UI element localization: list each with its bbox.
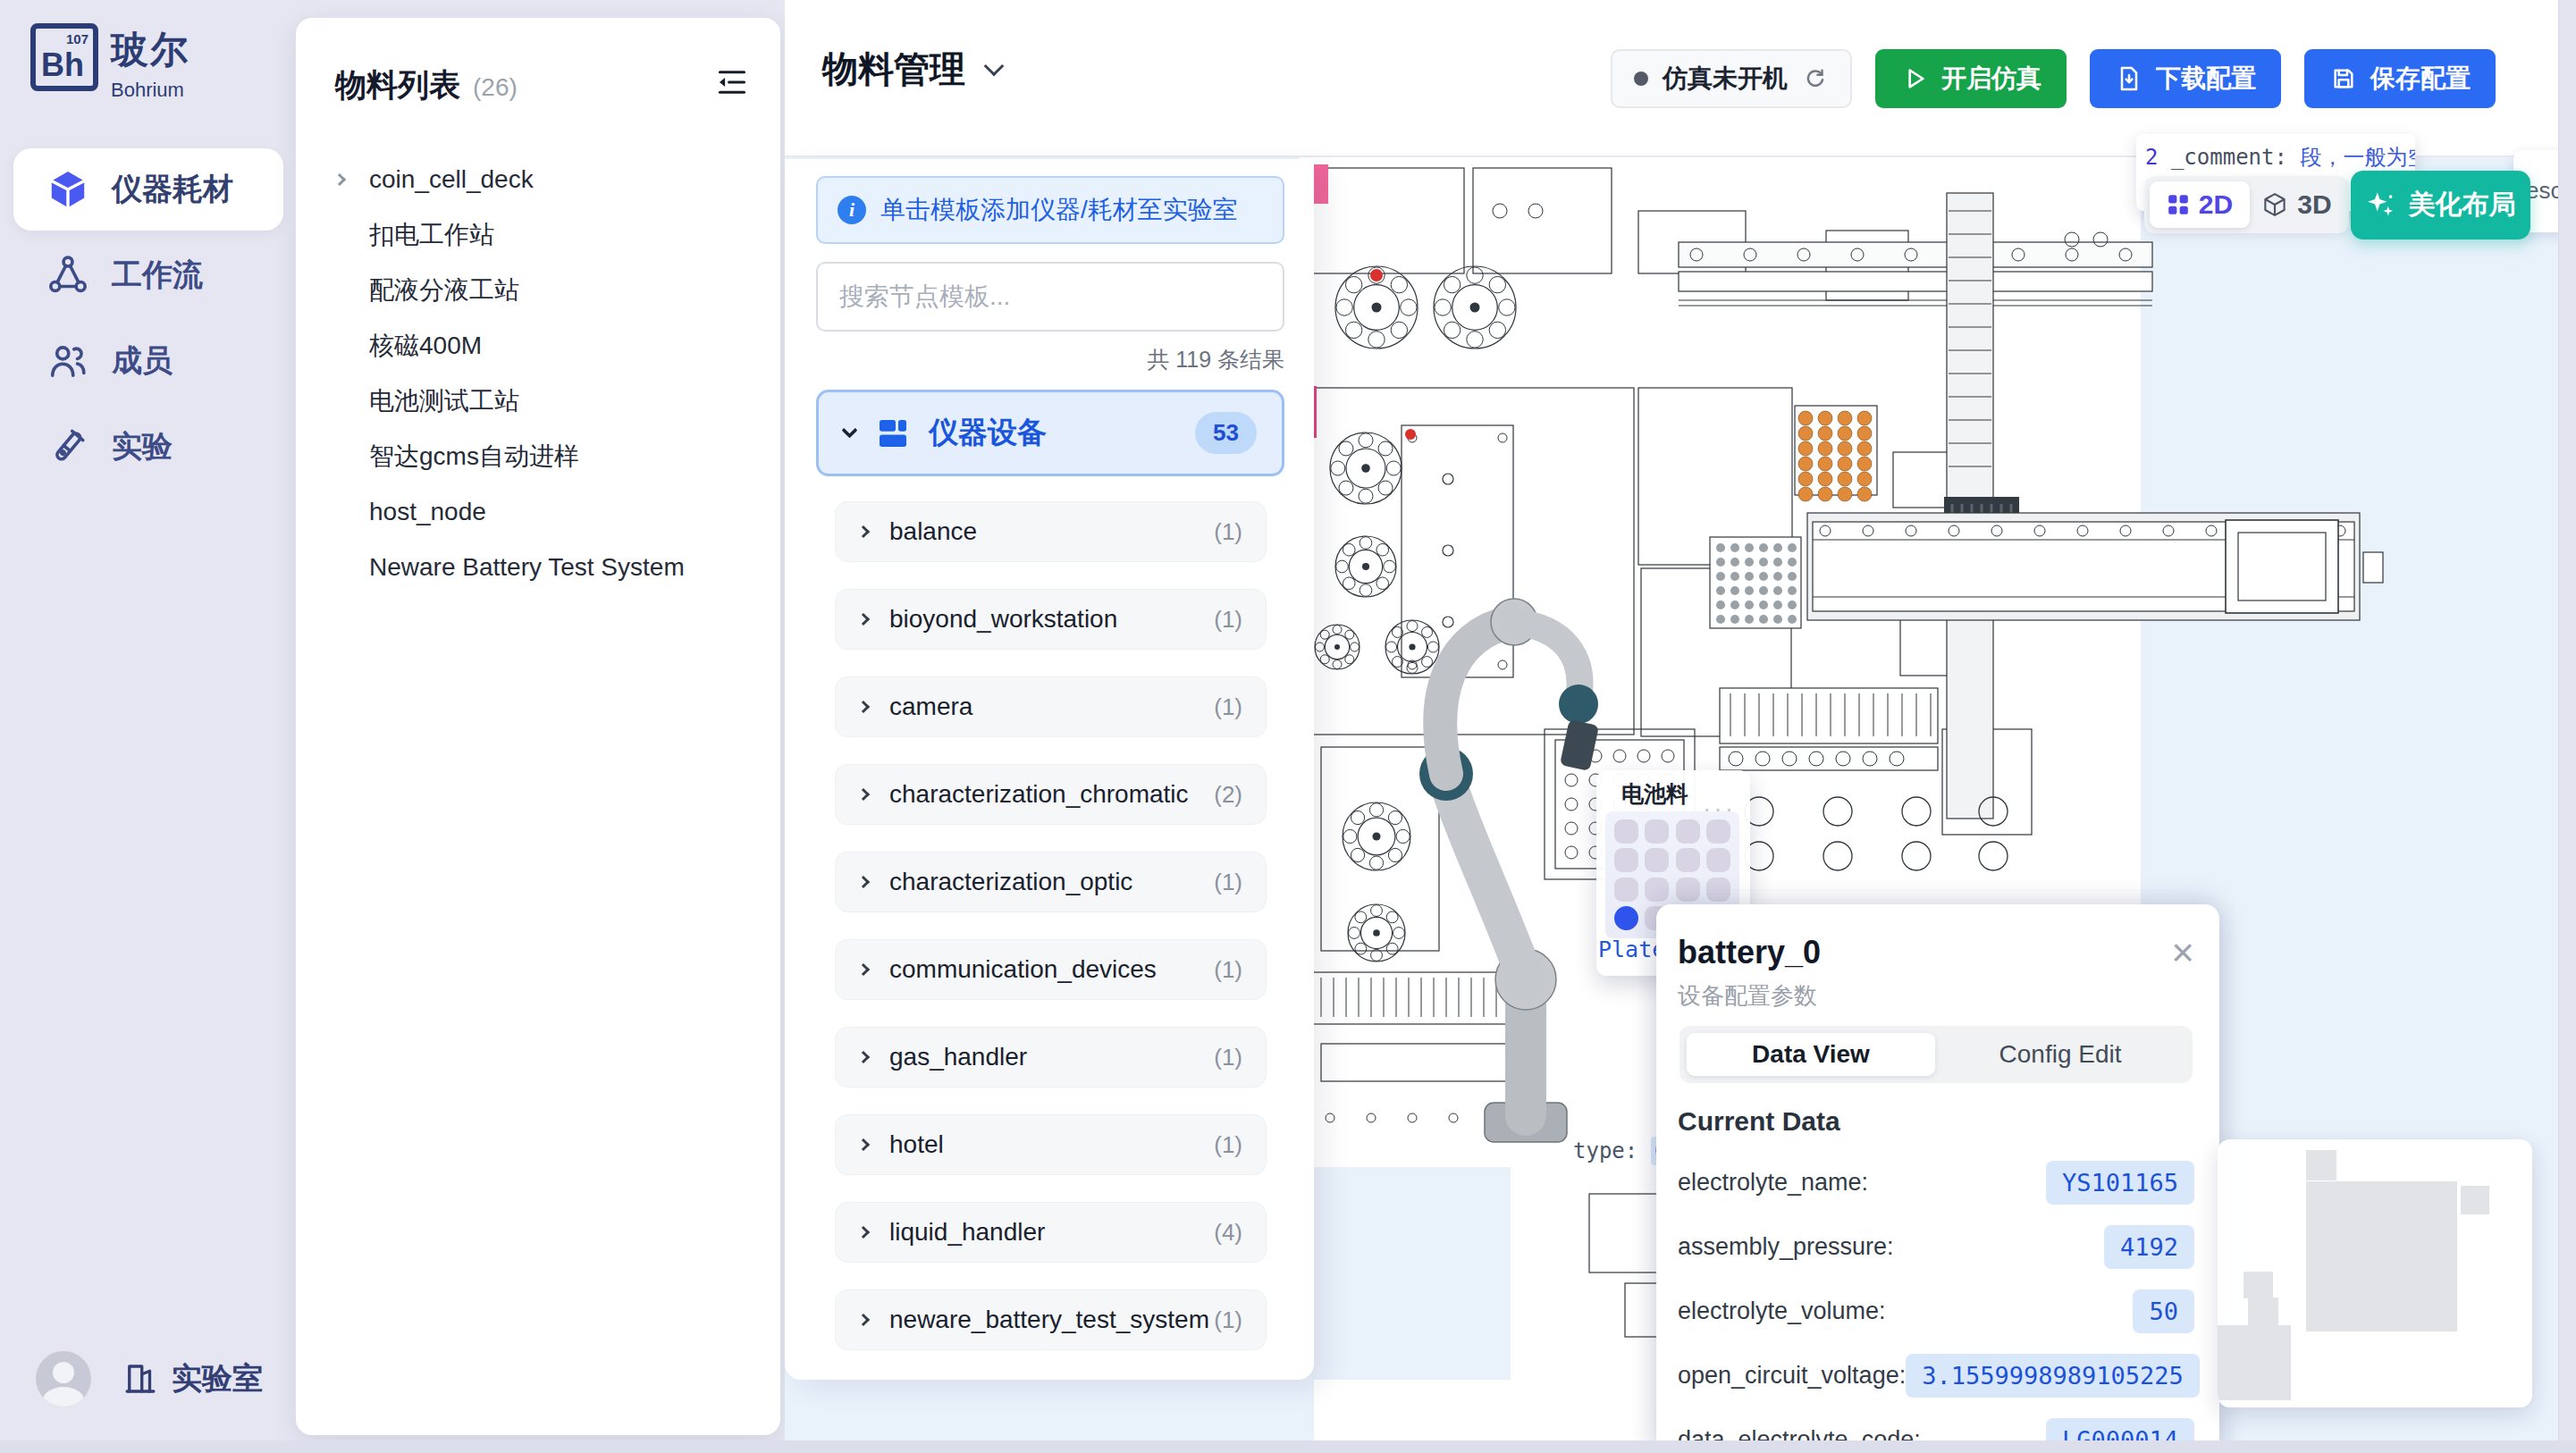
template-item-count: (1) bbox=[1214, 693, 1242, 721]
template-item-count: (2) bbox=[1214, 781, 1242, 809]
search-input[interactable] bbox=[816, 262, 1284, 332]
material-item[interactable]: 电池测试工站 bbox=[335, 374, 753, 429]
chevron-right-icon bbox=[857, 613, 870, 626]
tray-slot bbox=[1645, 819, 1669, 844]
chevron-right-icon bbox=[857, 1314, 870, 1326]
save-config-label: 保存配置 bbox=[2370, 62, 2471, 96]
chevron-down-icon bbox=[841, 422, 857, 438]
brand-name-zh: 玻尔 bbox=[111, 25, 189, 75]
data-row-label: electrolyte_name: bbox=[1678, 1169, 1868, 1197]
template-item-balance[interactable]: balance(1) bbox=[835, 501, 1267, 562]
tray-slot bbox=[1706, 848, 1730, 872]
brand-logo-mark: 107 Bh bbox=[30, 23, 98, 91]
detail-tabs: Data View Config Edit bbox=[1679, 1026, 2193, 1083]
data-row-label: open_circuit_voltage: bbox=[1678, 1362, 1906, 1390]
sidebar-item-label: 成员 bbox=[112, 340, 173, 382]
chevron-right-icon bbox=[857, 525, 870, 538]
simulation-status-pill[interactable]: 仿真未开机 bbox=[1611, 49, 1852, 108]
material-item[interactable]: host_node bbox=[335, 484, 753, 540]
simulation-status-text: 仿真未开机 bbox=[1663, 62, 1788, 96]
download-icon bbox=[2115, 64, 2143, 93]
template-item-characterization_chromatic[interactable]: characterization_chromatic(2) bbox=[835, 764, 1267, 825]
tray-slot bbox=[1676, 878, 1700, 902]
chevron-right-icon bbox=[857, 876, 870, 888]
template-item-gas_handler[interactable]: gas_handler(1) bbox=[835, 1027, 1267, 1088]
tab-config-edit[interactable]: Config Edit bbox=[1935, 1033, 2185, 1076]
template-item-label: characterization_optic bbox=[889, 868, 1132, 896]
template-panel: i 单击模板添加仪器/耗材至实验室 共 119 条结果 仪器设备 53 bala… bbox=[785, 159, 1314, 1380]
grid-layout-icon bbox=[877, 417, 909, 449]
close-icon[interactable]: × bbox=[2171, 936, 2194, 969]
toggle-2d-label: 2D bbox=[2199, 189, 2233, 220]
material-item-label: 扣电工作站 bbox=[369, 218, 494, 252]
sidebar-item-experiments[interactable]: 实验 bbox=[13, 406, 283, 488]
toggle-3d-label: 3D bbox=[2297, 189, 2331, 220]
toggle-2d[interactable]: 2D bbox=[2150, 181, 2250, 228]
brand-logo: 107 Bh 玻尔 Bohrium bbox=[30, 23, 189, 102]
data-row: open_circuit_voltage:3.1559998989105225 bbox=[1678, 1343, 2194, 1407]
template-item-label: liquid_handler bbox=[889, 1218, 1045, 1247]
group-header-instruments[interactable]: 仪器设备 53 bbox=[816, 390, 1284, 476]
sidebar-footer-label: 实验室 bbox=[172, 1358, 263, 1399]
minimap-block bbox=[2461, 1186, 2489, 1214]
material-items: coin_cell_deck扣电工作站配液分液工站核磁400M电池测试工站智达g… bbox=[335, 152, 753, 595]
template-item-count: (1) bbox=[1214, 518, 1242, 546]
vertical-scrollbar[interactable] bbox=[2558, 0, 2576, 1453]
beautify-layout-label: 美化布局 bbox=[2409, 187, 2516, 223]
status-dot-icon bbox=[1634, 71, 1648, 86]
material-list-title: 物料列表 bbox=[335, 64, 460, 106]
template-item-hotel[interactable]: hotel(1) bbox=[835, 1114, 1267, 1175]
tray-slot bbox=[1706, 878, 1730, 902]
material-item[interactable]: 配液分液工站 bbox=[335, 263, 753, 318]
toggle-3d[interactable]: 3D bbox=[2250, 189, 2344, 220]
save-icon bbox=[2329, 64, 2358, 93]
hint-banner-text: 单击模板添加仪器/耗材至实验室 bbox=[880, 193, 1238, 227]
result-count: 共 119 条结果 bbox=[1147, 345, 1284, 374]
material-item-label: 配液分液工站 bbox=[369, 273, 519, 307]
template-item-neware_battery_test_system[interactable]: neware_battery_test_system(1) bbox=[835, 1289, 1267, 1350]
grid-2d-icon bbox=[2167, 193, 2190, 216]
minimap[interactable] bbox=[2218, 1139, 2532, 1407]
template-item-label: camera bbox=[889, 693, 972, 721]
view-mode-toggle: 2D 3D bbox=[2144, 176, 2349, 233]
template-item-bioyond_workstation[interactable]: bioyond_workstation(1) bbox=[835, 589, 1267, 650]
material-item-label: host_node bbox=[369, 498, 486, 526]
template-item-label: characterization_chromatic bbox=[889, 780, 1189, 809]
chevron-right-icon bbox=[857, 788, 870, 801]
download-config-button[interactable]: 下载配置 bbox=[2090, 49, 2281, 108]
cube-icon bbox=[47, 169, 88, 210]
tray-slot bbox=[1676, 819, 1700, 844]
template-item-label: balance bbox=[889, 517, 977, 546]
canvas-code-plate: Plate bbox=[1598, 936, 1665, 962]
brand-name-en: Bohrium bbox=[111, 79, 189, 102]
page-title: 物料管理 bbox=[822, 45, 965, 94]
chevron-right-icon bbox=[857, 701, 870, 713]
sidebar-item-label: 仪器耗材 bbox=[112, 169, 233, 210]
chevron-right-icon bbox=[857, 1138, 870, 1151]
code-key: _comment: bbox=[2171, 145, 2287, 170]
material-item[interactable]: 智达gcms自动进样 bbox=[335, 429, 753, 484]
material-list-panel: 物料列表 (26) coin_cell_deck扣电工作站配液分液工站核磁400… bbox=[296, 18, 780, 1435]
play-icon bbox=[1900, 64, 1929, 93]
refresh-icon[interactable] bbox=[1802, 65, 1829, 92]
data-row-value: 50 bbox=[2133, 1289, 2194, 1333]
template-item-label: hotel bbox=[889, 1130, 944, 1159]
material-item-label: 电池测试工站 bbox=[369, 384, 519, 418]
sidebar-item-label: 工作流 bbox=[112, 255, 203, 296]
template-item-count: (4) bbox=[1214, 1219, 1242, 1247]
start-simulation-label: 开启仿真 bbox=[1941, 62, 2041, 96]
sparkles-icon bbox=[2366, 190, 2396, 221]
chevron-right-icon bbox=[857, 1226, 870, 1239]
code-line-number: 2 bbox=[2145, 145, 2158, 170]
device-detail-panel: battery_0 设备配置参数 × Data View Config Edit… bbox=[1656, 904, 2219, 1453]
group-label: 仪器设备 bbox=[929, 413, 1047, 453]
sidebar-item-instruments[interactable]: 仪器耗材 bbox=[13, 148, 283, 231]
data-row-value: 4192 bbox=[2104, 1225, 2194, 1269]
data-row-value: YS101165 bbox=[2046, 1161, 2194, 1205]
device-subtitle: 设备配置参数 bbox=[1678, 980, 1817, 1012]
chevron-right-icon bbox=[857, 963, 870, 976]
avatar[interactable] bbox=[36, 1351, 91, 1407]
tab-data-view[interactable]: Data View bbox=[1687, 1033, 1935, 1076]
tray-slot bbox=[1614, 848, 1638, 872]
data-row-value: 3.1559998989105225 bbox=[1906, 1354, 2200, 1398]
info-icon: i bbox=[838, 196, 866, 224]
data-row: electrolyte_volume:50 bbox=[1678, 1279, 2194, 1343]
sidebar-item-laboratory[interactable]: 实验室 bbox=[122, 1358, 263, 1399]
group-count-badge: 53 bbox=[1195, 412, 1257, 454]
material-item[interactable]: Neware Battery Test System bbox=[335, 540, 753, 595]
material-item-label: Neware Battery Test System bbox=[369, 553, 685, 582]
code-value: 段，一般为空，stat bbox=[2300, 145, 2415, 170]
tray-slot bbox=[1645, 878, 1669, 902]
tray-slot bbox=[1706, 819, 1730, 844]
current-data-heading: Current Data bbox=[1678, 1106, 1840, 1137]
material-item-label: 核磁400M bbox=[369, 329, 482, 363]
template-item-count: (1) bbox=[1214, 869, 1242, 896]
template-item-camera[interactable]: camera(1) bbox=[835, 676, 1267, 737]
material-item[interactable]: 核磁400M bbox=[335, 318, 753, 374]
minimap-block bbox=[2243, 1272, 2273, 1298]
template-item-liquid_handler[interactable]: liquid_handler(4) bbox=[835, 1202, 1267, 1263]
outdent-icon[interactable] bbox=[716, 68, 748, 97]
chevron-right-icon bbox=[857, 1051, 870, 1063]
data-row: electrolyte_name:YS101165 bbox=[1678, 1150, 2194, 1214]
template-item-label: neware_battery_test_system bbox=[889, 1306, 1209, 1334]
tray-slot-selected[interactable] bbox=[1614, 906, 1638, 930]
minimap-block bbox=[2248, 1298, 2278, 1325]
tray-slot bbox=[1645, 848, 1669, 872]
tray-slot bbox=[1614, 819, 1638, 844]
cube-3d-icon bbox=[2261, 191, 2288, 218]
material-item-label: coin_cell_deck bbox=[369, 165, 534, 194]
template-rows: balance(1)bioyond_workstation(1)camera(1… bbox=[835, 501, 1267, 1377]
horizontal-scrollbar[interactable] bbox=[0, 1440, 2576, 1453]
material-item[interactable]: 扣电工作站 bbox=[335, 207, 753, 263]
material-item-label: 智达gcms自动进样 bbox=[369, 440, 579, 474]
material-item[interactable]: coin_cell_deck bbox=[335, 152, 753, 207]
template-item-label: communication_devices bbox=[889, 955, 1157, 984]
hint-banner: i 单击模板添加仪器/耗材至实验室 bbox=[816, 176, 1284, 244]
workflow-icon bbox=[47, 255, 88, 296]
template-item-communication_devices[interactable]: communication_devices(1) bbox=[835, 939, 1267, 1000]
current-data-rows: electrolyte_name:YS101165assembly_pressu… bbox=[1678, 1150, 2194, 1453]
template-item-count: (1) bbox=[1214, 956, 1242, 984]
sidebar-item-label: 实验 bbox=[112, 426, 173, 467]
page-title-dropdown[interactable]: 物料管理 bbox=[822, 45, 1001, 94]
minimap-block bbox=[2218, 1325, 2291, 1400]
template-item-count: (1) bbox=[1214, 606, 1242, 634]
brand-symbol: Bh bbox=[41, 46, 84, 84]
start-simulation-button[interactable]: 开启仿真 bbox=[1875, 49, 2067, 108]
sidebar: 107 Bh 玻尔 Bohrium 仪器耗材工作流成员实验 实验室 bbox=[0, 0, 296, 1440]
chevron-right-icon[interactable] bbox=[333, 173, 346, 186]
template-item-count: (1) bbox=[1214, 1044, 1242, 1071]
template-item-characterization_optic[interactable]: characterization_optic(1) bbox=[835, 852, 1267, 912]
tray-slot bbox=[1676, 848, 1700, 872]
data-row-label: assembly_pressure: bbox=[1678, 1233, 1894, 1261]
brand-number: 107 bbox=[66, 31, 88, 46]
members-icon bbox=[47, 340, 88, 382]
template-item-label: gas_handler bbox=[889, 1043, 1027, 1071]
template-item-count: (1) bbox=[1214, 1306, 1242, 1334]
sidebar-item-workflow[interactable]: 工作流 bbox=[13, 234, 283, 316]
template-item-count: (1) bbox=[1214, 1131, 1242, 1159]
chevron-down-icon bbox=[984, 55, 1005, 76]
data-row-label: electrolyte_volume: bbox=[1678, 1298, 1886, 1325]
save-config-button[interactable]: 保存配置 bbox=[2304, 49, 2496, 108]
data-row: assembly_pressure:4192 bbox=[1678, 1214, 2194, 1279]
code-type-key: type: bbox=[1573, 1138, 1637, 1163]
template-item-label: bioyond_workstation bbox=[889, 605, 1117, 634]
building-icon bbox=[122, 1360, 159, 1398]
beautify-layout-button[interactable]: 美化布局 bbox=[2351, 171, 2530, 239]
sidebar-item-members[interactable]: 成员 bbox=[13, 320, 283, 402]
experiment-icon bbox=[47, 426, 88, 467]
minimap-block bbox=[2306, 1181, 2457, 1331]
minimap-block bbox=[2306, 1150, 2336, 1180]
material-list-count: (26) bbox=[473, 73, 518, 102]
device-title: battery_0 bbox=[1678, 934, 1821, 971]
download-config-label: 下载配置 bbox=[2156, 62, 2256, 96]
tray-slot bbox=[1614, 878, 1638, 902]
